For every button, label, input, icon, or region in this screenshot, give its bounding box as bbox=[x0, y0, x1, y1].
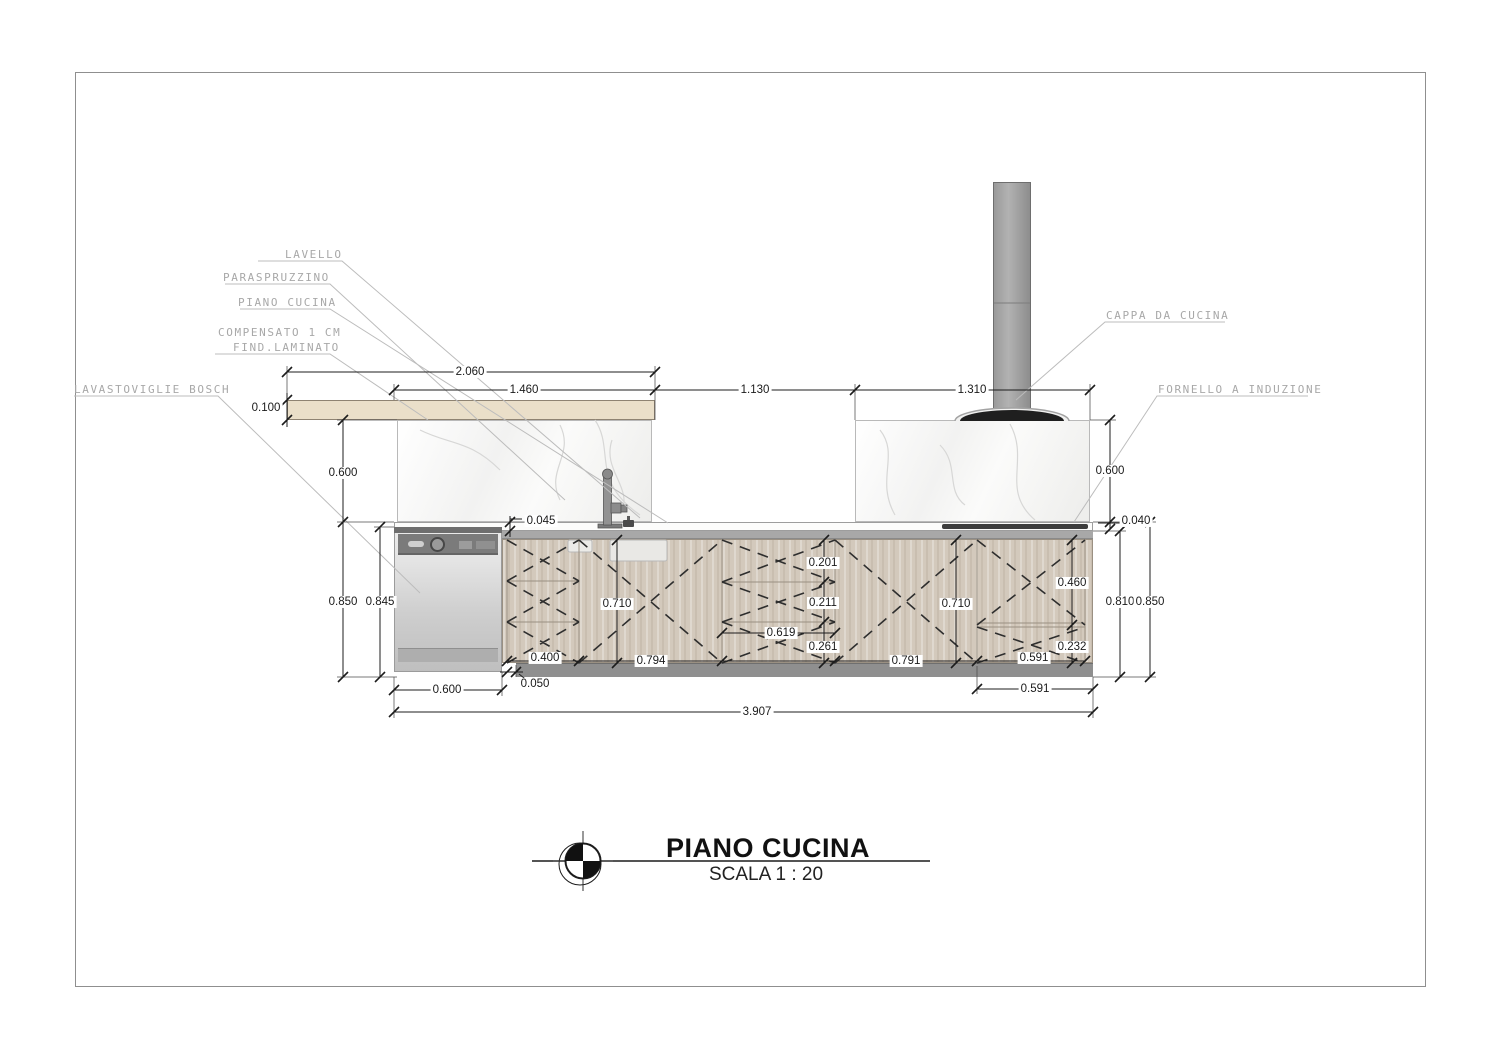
base-cabinet-run bbox=[502, 539, 1093, 663]
drawing-title: PIANO CUCINA bbox=[666, 833, 870, 864]
dim-counter-thickness-right: 0.040 bbox=[1120, 515, 1153, 527]
dim-drawer-lower-right: 0.232 bbox=[1056, 641, 1089, 653]
dim-drawer3-height: 0.261 bbox=[807, 641, 840, 653]
dishwasher-brand-badge bbox=[408, 541, 424, 547]
dim-splash-height-right: 0.600 bbox=[1094, 465, 1127, 477]
dim-dishwasher-height: 0.845 bbox=[364, 596, 397, 608]
dim-counter-thickness-left: 0.045 bbox=[525, 515, 558, 527]
drawing-canvas: LAVELLO PARASPRUZZINO PIANO CUCINA COMPE… bbox=[0, 0, 1500, 1060]
induction-hob bbox=[942, 524, 1088, 529]
dishwasher-kick-band bbox=[398, 648, 498, 662]
dim-door-upper-right: 0.460 bbox=[1056, 577, 1089, 589]
dim-top-splash-left: 1.460 bbox=[508, 384, 541, 396]
dim-plinth-inset: 0.050 bbox=[519, 678, 552, 690]
dim-drawer2-height: 0.211 bbox=[807, 597, 839, 609]
dishwasher-display-2 bbox=[476, 541, 495, 549]
dim-dishwasher-width: 0.600 bbox=[431, 684, 464, 696]
plywood-shelf bbox=[287, 400, 655, 420]
dim-cabinet-height-right: 0.850 bbox=[1134, 596, 1167, 608]
callout-compensato-line2: FIND.LAMINATO bbox=[233, 341, 340, 354]
dim-unit2-width: 0.794 bbox=[635, 655, 668, 667]
dim-total-width: 3.907 bbox=[741, 706, 774, 718]
counter-edge-rail bbox=[502, 531, 1093, 539]
backsplash-right-marble bbox=[855, 420, 1090, 522]
hood-chimney-duct bbox=[993, 182, 1031, 412]
dim-drawer-stack-width: 0.619 bbox=[765, 627, 798, 639]
dishwasher-display bbox=[459, 541, 472, 549]
dim-splash-height-left: 0.600 bbox=[327, 467, 360, 479]
dim-door-height-left: 0.710 bbox=[601, 598, 634, 610]
callout-paraspruzzino: PARASPRUZZINO bbox=[223, 271, 330, 284]
dim-unit1-width: 0.400 bbox=[529, 652, 562, 664]
backsplash-left-marble bbox=[397, 420, 652, 522]
dim-cabinet-height-left: 0.850 bbox=[327, 596, 360, 608]
callout-lavello: LAVELLO bbox=[285, 248, 343, 261]
dim-unit5-width-base: 0.591 bbox=[1019, 683, 1052, 695]
drawing-scale: SCALA 1 : 20 bbox=[709, 864, 823, 886]
dim-top-shelf: 2.060 bbox=[454, 366, 487, 378]
plinth bbox=[516, 663, 1093, 677]
dim-top-gap: 1.130 bbox=[739, 384, 772, 396]
dishwasher-top-edge bbox=[394, 527, 502, 533]
dim-inner-height-right: 0.810 bbox=[1104, 596, 1137, 608]
dim-unit5-width: 0.591 bbox=[1018, 652, 1051, 664]
dim-top-splash-right: 1.310 bbox=[956, 384, 989, 396]
dim-shelf-thickness: 0.100 bbox=[250, 402, 283, 414]
dim-drawer1-height: 0.201 bbox=[807, 557, 840, 569]
dim-door-height-right: 0.710 bbox=[940, 598, 973, 610]
callout-cappa: CAPPA DA CUCINA bbox=[1106, 309, 1229, 322]
callout-piano-cucina: PIANO CUCINA bbox=[238, 296, 337, 309]
dishwasher-knob bbox=[430, 537, 445, 552]
callout-compensato-line1: COMPENSATO 1 CM bbox=[218, 326, 341, 339]
callout-fornello: FORNELLO A INDUZIONE bbox=[1158, 383, 1322, 396]
callout-lavastoviglie: LAVASTOVIGLIE BOSCH bbox=[74, 383, 230, 396]
dim-unit4-width: 0.791 bbox=[890, 655, 923, 667]
